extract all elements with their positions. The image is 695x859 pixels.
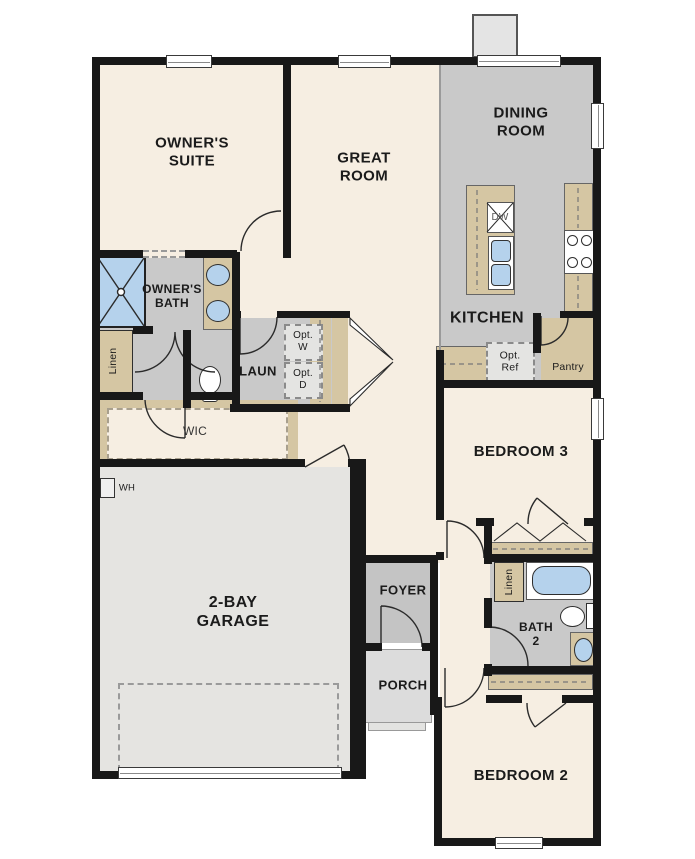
wall (352, 555, 438, 563)
chimney (472, 14, 518, 58)
wall (584, 518, 601, 526)
window-slider (477, 55, 561, 67)
label-pantry: Pantry (552, 361, 584, 373)
label-owners-bath: OWNER'S BATH (142, 282, 202, 310)
kitchen-sink-basin (491, 264, 511, 286)
garage-door-zone (118, 683, 339, 771)
water-heater-box (100, 478, 115, 498)
label-linen-hall: Linen (503, 569, 515, 596)
room-foyer-floor (366, 563, 430, 643)
cased-opening (143, 250, 185, 258)
wall (96, 392, 143, 400)
wall (277, 311, 350, 318)
window (495, 837, 543, 849)
label-great-room: GREAT ROOM (337, 149, 390, 184)
wall (484, 598, 492, 628)
label-linen-owners: Linen (107, 348, 119, 375)
label-bath2: BATH 2 (519, 620, 553, 648)
window (591, 103, 604, 149)
wall (560, 311, 601, 318)
label-dining-room: DINING ROOM (494, 104, 549, 139)
wall (436, 350, 444, 520)
wall (434, 697, 442, 846)
wall (593, 57, 601, 846)
bedroom2-closet-shelf (488, 674, 593, 690)
burner-icon (581, 235, 592, 246)
porch-step (368, 722, 426, 731)
label-foyer: FOYER (380, 582, 427, 597)
wall (533, 313, 541, 353)
wall (436, 380, 601, 388)
wall (476, 518, 494, 526)
wall (562, 695, 601, 703)
toilet-icon (560, 606, 585, 627)
wall (92, 771, 120, 779)
label-wic: WIC (183, 424, 207, 438)
label-opt-washer: Opt. W (293, 330, 313, 354)
wall (92, 57, 444, 65)
label-opt-refrigerator: Opt. Ref (500, 350, 521, 375)
label-garage: 2-BAY GARAGE (197, 594, 270, 632)
room-divider-line (439, 65, 441, 350)
window (591, 398, 604, 440)
label-bedroom2: BEDROOM 2 (474, 767, 568, 785)
wall (430, 555, 438, 715)
wall (283, 57, 291, 258)
burner-icon (581, 257, 592, 268)
burner-icon (567, 235, 578, 246)
vanity-sink-icon (206, 300, 230, 322)
kitchen-sink-basin (491, 240, 511, 262)
label-water-heater: WH (119, 482, 135, 493)
label-porch: PORCH (379, 677, 428, 692)
wall (350, 459, 366, 779)
garage-door (118, 767, 342, 779)
label-owners-suite: OWNER'S SUITE (155, 134, 229, 169)
wall (486, 695, 522, 703)
window (338, 55, 391, 68)
wall (436, 552, 444, 560)
bath2-sink-icon (574, 638, 593, 662)
bathtub-icon (532, 566, 591, 595)
label-bedroom3: BEDROOM 3 (474, 443, 568, 461)
wall (92, 57, 100, 779)
wall (232, 252, 240, 412)
wall (184, 392, 240, 400)
wall (133, 326, 153, 334)
wall (484, 666, 601, 674)
wall (422, 643, 438, 651)
wall (92, 459, 305, 467)
coat-closet-shelf (332, 315, 348, 408)
label-laundry: LAUN (239, 363, 277, 378)
wall (484, 554, 601, 562)
wall (232, 311, 241, 318)
shower-icon (96, 256, 146, 328)
label-kitchen: KITCHEN (450, 310, 524, 329)
burner-icon (567, 257, 578, 268)
label-opt-dryer: Opt. D (293, 368, 313, 392)
window (166, 55, 212, 68)
floor-plan: OWNER'S SUITE GREAT ROOM DINING ROOM KIT… (0, 0, 695, 859)
wall (230, 404, 350, 412)
toilet-icon (199, 366, 221, 394)
wall (352, 643, 382, 651)
label-dishwasher: DW (491, 212, 508, 224)
vanity-sink-icon (206, 264, 230, 286)
